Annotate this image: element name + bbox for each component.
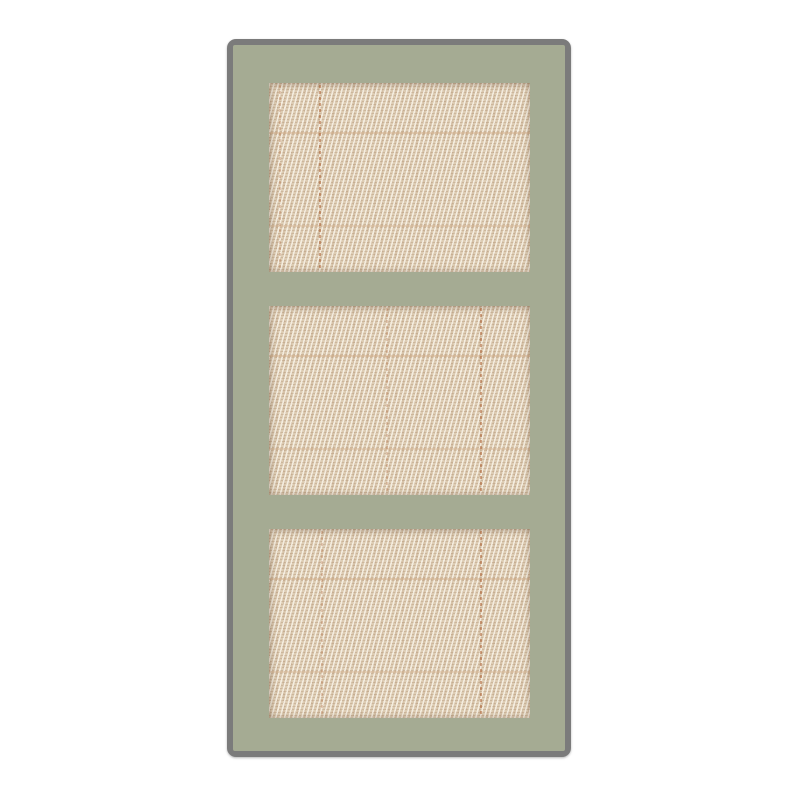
cane-webbing-panel-top	[269, 83, 530, 272]
door-shadow-outline	[227, 39, 571, 757]
product-photo-canvas	[0, 0, 800, 800]
cane-webbing-panel-middle	[269, 306, 530, 495]
door-frame	[233, 45, 565, 751]
cane-webbing-panel-bottom	[269, 529, 530, 718]
